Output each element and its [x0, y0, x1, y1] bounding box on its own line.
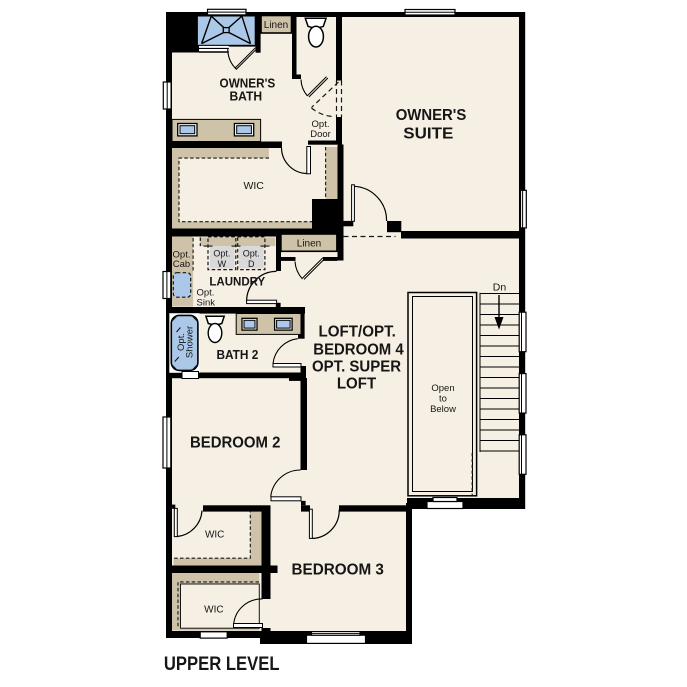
svg-text:WIC: WIC [243, 180, 264, 192]
svg-text:LOFT/OPT.: LOFT/OPT. [319, 323, 396, 340]
svg-text:W: W [218, 259, 227, 269]
svg-text:WIC: WIC [205, 530, 224, 541]
svg-text:Door: Door [310, 129, 331, 140]
svg-text:BATH 2: BATH 2 [216, 347, 258, 362]
svg-text:Linen: Linen [264, 20, 288, 31]
svg-text:Dn: Dn [493, 281, 507, 293]
svg-text:OPT. SUPER: OPT. SUPER [312, 359, 402, 376]
svg-text:BEDROOM 3: BEDROOM 3 [292, 561, 384, 578]
svg-text:Shower: Shower [184, 326, 195, 358]
svg-text:LOFT: LOFT [337, 376, 377, 393]
svg-text:Linen: Linen [297, 238, 321, 249]
svg-text:LAUNDRY: LAUNDRY [209, 277, 265, 289]
svg-text:D: D [248, 259, 255, 269]
svg-text:WIC: WIC [204, 605, 223, 616]
svg-text:Open: Open [431, 383, 454, 394]
svg-text:UPPER LEVEL: UPPER LEVEL [164, 653, 280, 675]
svg-text:SUITE: SUITE [403, 125, 453, 142]
svg-text:BEDROOM 4: BEDROOM 4 [313, 342, 403, 359]
svg-text:Opt.: Opt. [243, 249, 260, 259]
svg-text:BEDROOM 2: BEDROOM 2 [190, 435, 281, 452]
svg-text:Cab: Cab [173, 259, 190, 270]
svg-text:Below: Below [430, 404, 456, 415]
svg-text:Sink: Sink [197, 298, 216, 309]
svg-text:OWNER'S: OWNER'S [396, 107, 467, 124]
svg-text:BATH: BATH [229, 88, 262, 103]
svg-text:to: to [439, 394, 447, 405]
svg-text:Opt.: Opt. [213, 249, 230, 259]
